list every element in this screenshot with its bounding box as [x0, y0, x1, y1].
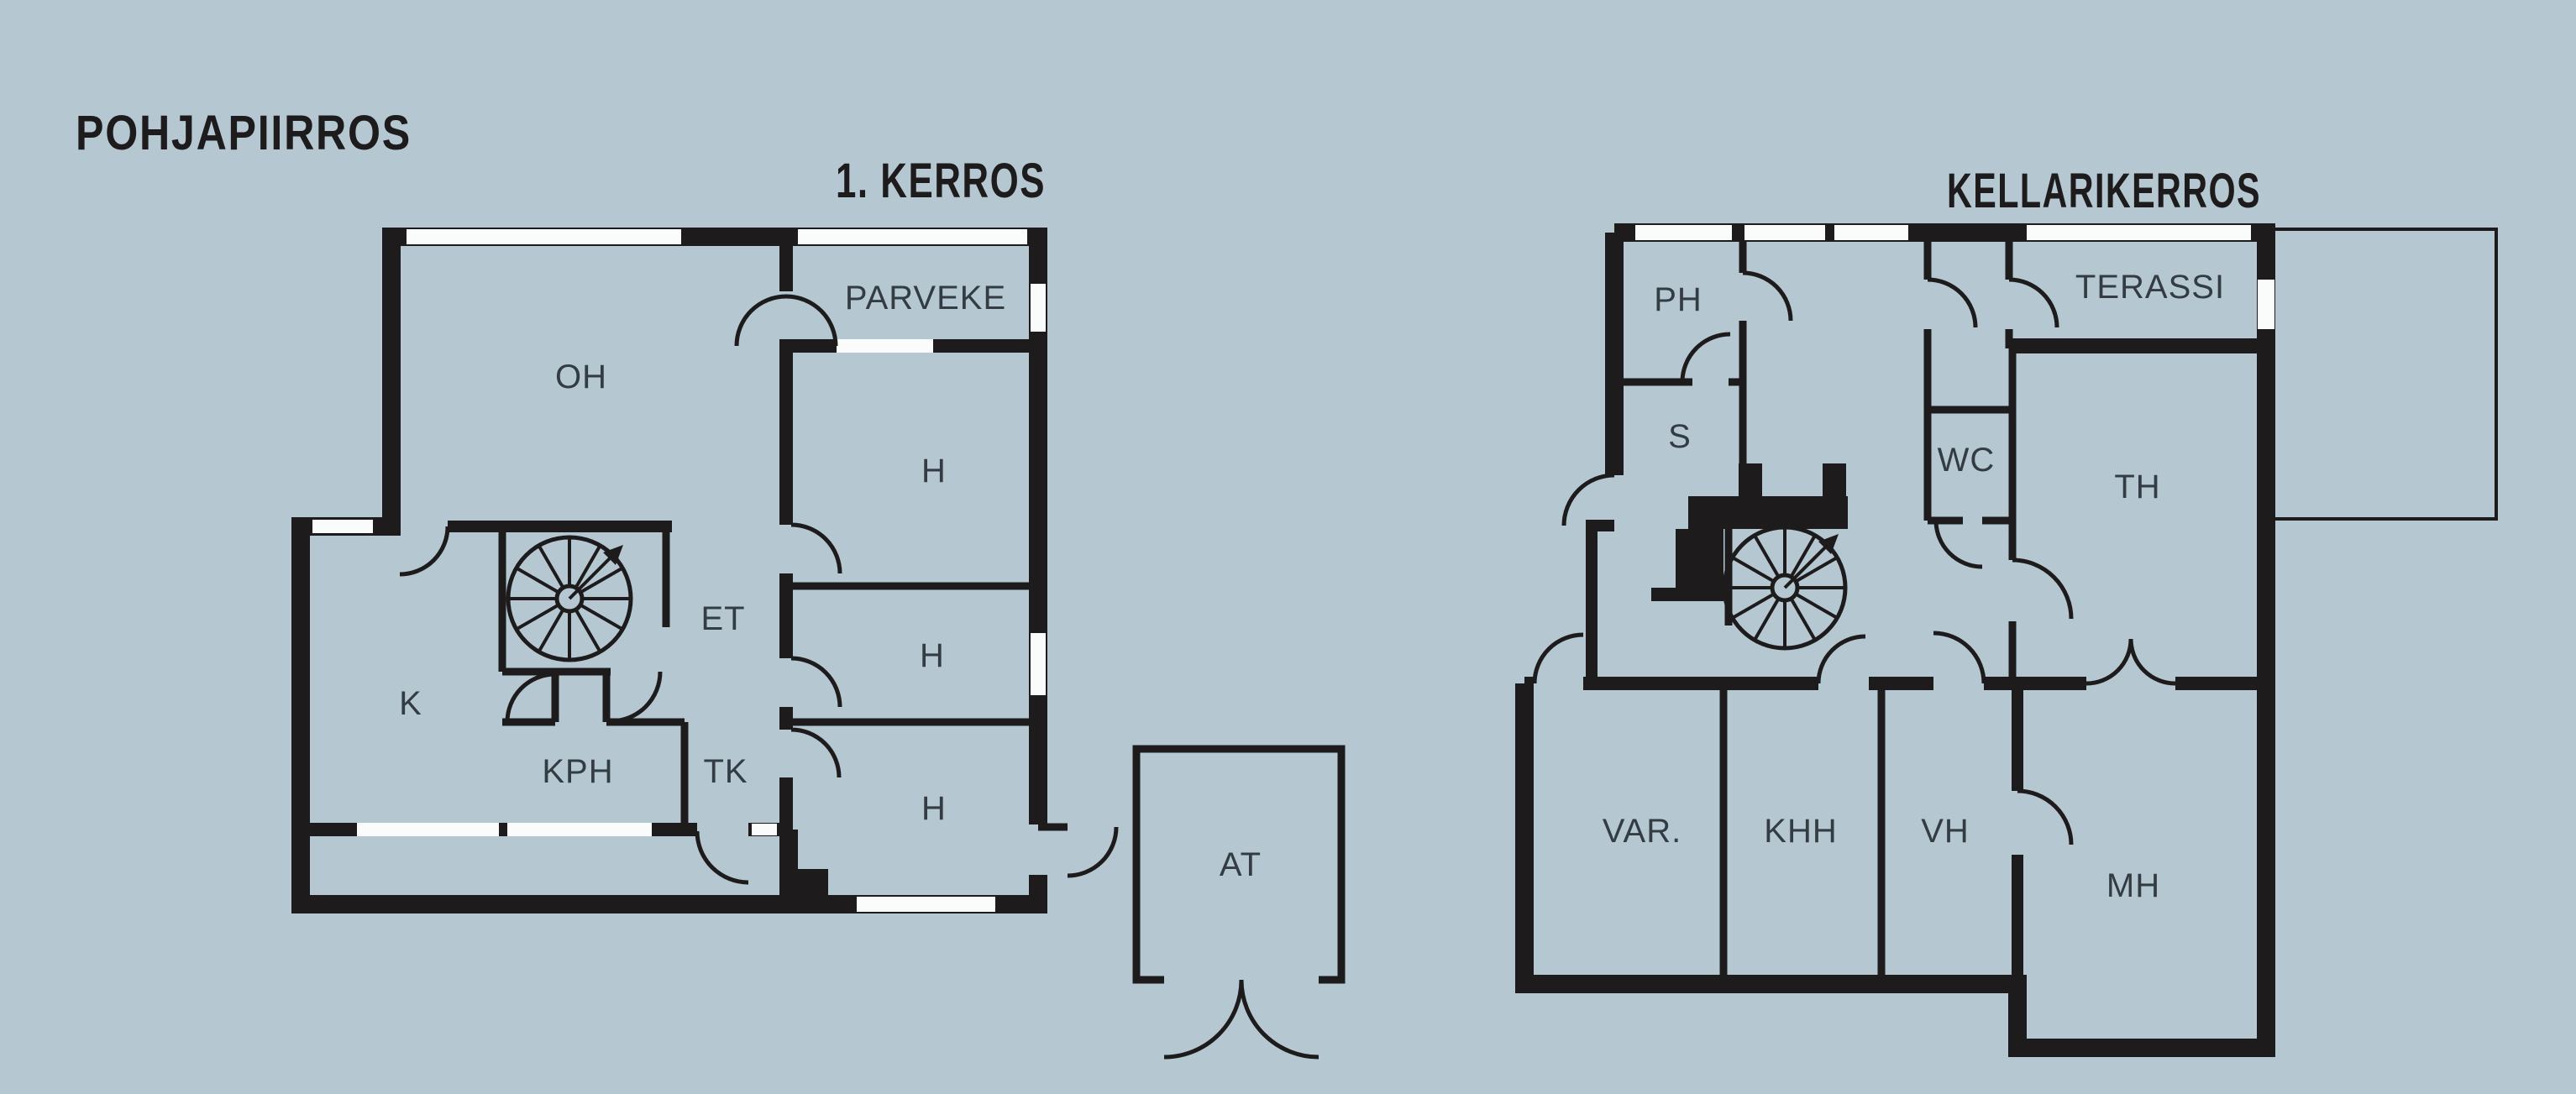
spiral-staircase-icon	[1724, 527, 1845, 648]
door-opening	[1026, 824, 1051, 875]
room-label-var: VAR.	[1603, 813, 1681, 850]
window	[2027, 225, 2251, 240]
floor-plan-page: POHJAPIIRROS 1. KERROS KELLARIKERROS	[0, 0, 2576, 1094]
window	[407, 229, 681, 244]
room-label-th: TH	[2114, 468, 2160, 505]
room-label-mh: MH	[2106, 867, 2160, 904]
window	[798, 229, 1027, 244]
window	[857, 897, 995, 912]
room-label-kph: KPH	[542, 753, 613, 790]
spiral-staircase-icon	[508, 537, 631, 660]
window	[2258, 280, 2274, 329]
floor1-title: 1. KERROS	[836, 154, 1046, 208]
room-label-h1: H	[921, 453, 947, 489]
window	[1744, 225, 1825, 240]
room-label-k: K	[399, 685, 422, 722]
room-label-ph: PH	[1654, 281, 1702, 318]
page-title: POHJAPIIRROS	[76, 106, 412, 160]
window	[507, 823, 652, 836]
room-label-wc: WC	[1938, 442, 1996, 479]
room-label-s: S	[1668, 418, 1692, 455]
window	[1834, 225, 1908, 240]
floor-plan-image: POHJAPIIRROS 1. KERROS KELLARIKERROS	[0, 0, 2576, 1094]
window	[312, 520, 373, 533]
window	[752, 824, 777, 835]
window	[357, 823, 499, 836]
room-label-h3: H	[921, 790, 947, 827]
window	[837, 339, 933, 353]
window	[1031, 284, 1046, 332]
room-label-at: AT	[1220, 846, 1262, 883]
wall-junction-block	[779, 869, 828, 904]
window	[1635, 225, 1732, 240]
room-label-terassi: TERASSI	[2075, 269, 2225, 306]
room-label-h2: H	[920, 637, 945, 674]
basement-title: KELLARIKERROS	[1947, 164, 2261, 218]
room-label-khh: KHH	[1764, 813, 1837, 850]
room-label-et: ET	[700, 600, 745, 637]
room-label-oh: OH	[555, 359, 607, 395]
room-label-parveke: PARVEKE	[845, 280, 1006, 317]
room-label-tk: TK	[703, 753, 748, 790]
window	[1031, 633, 1046, 695]
room-label-vh: VH	[1921, 813, 1970, 850]
